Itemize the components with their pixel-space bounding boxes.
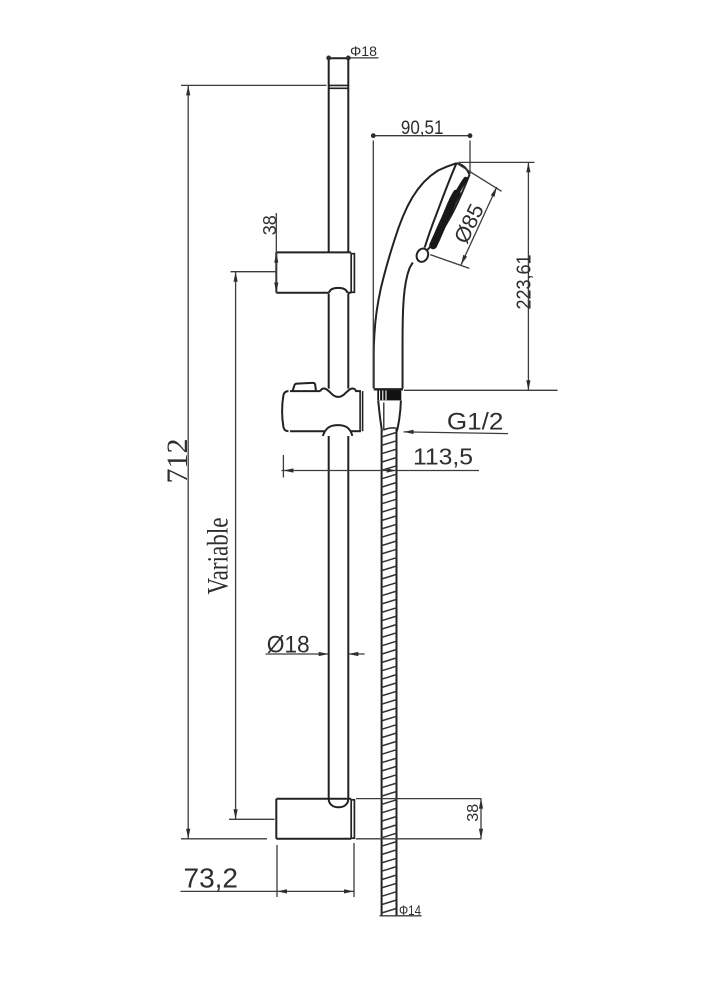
svg-text:712: 712 xyxy=(161,439,194,484)
svg-text:Variable: Variable xyxy=(201,518,234,595)
svg-text:38: 38 xyxy=(465,804,482,822)
svg-text:Φ14: Φ14 xyxy=(399,902,421,918)
svg-text:Ø18: Ø18 xyxy=(267,632,310,659)
svg-text:Φ18: Φ18 xyxy=(350,43,377,59)
svg-text:223,61: 223,61 xyxy=(513,255,535,310)
svg-text:G1/2: G1/2 xyxy=(447,409,504,436)
svg-text:38: 38 xyxy=(260,215,280,235)
svg-text:113,5: 113,5 xyxy=(413,444,473,470)
svg-text:73,2: 73,2 xyxy=(184,863,239,894)
svg-text:90,51: 90,51 xyxy=(401,118,444,139)
